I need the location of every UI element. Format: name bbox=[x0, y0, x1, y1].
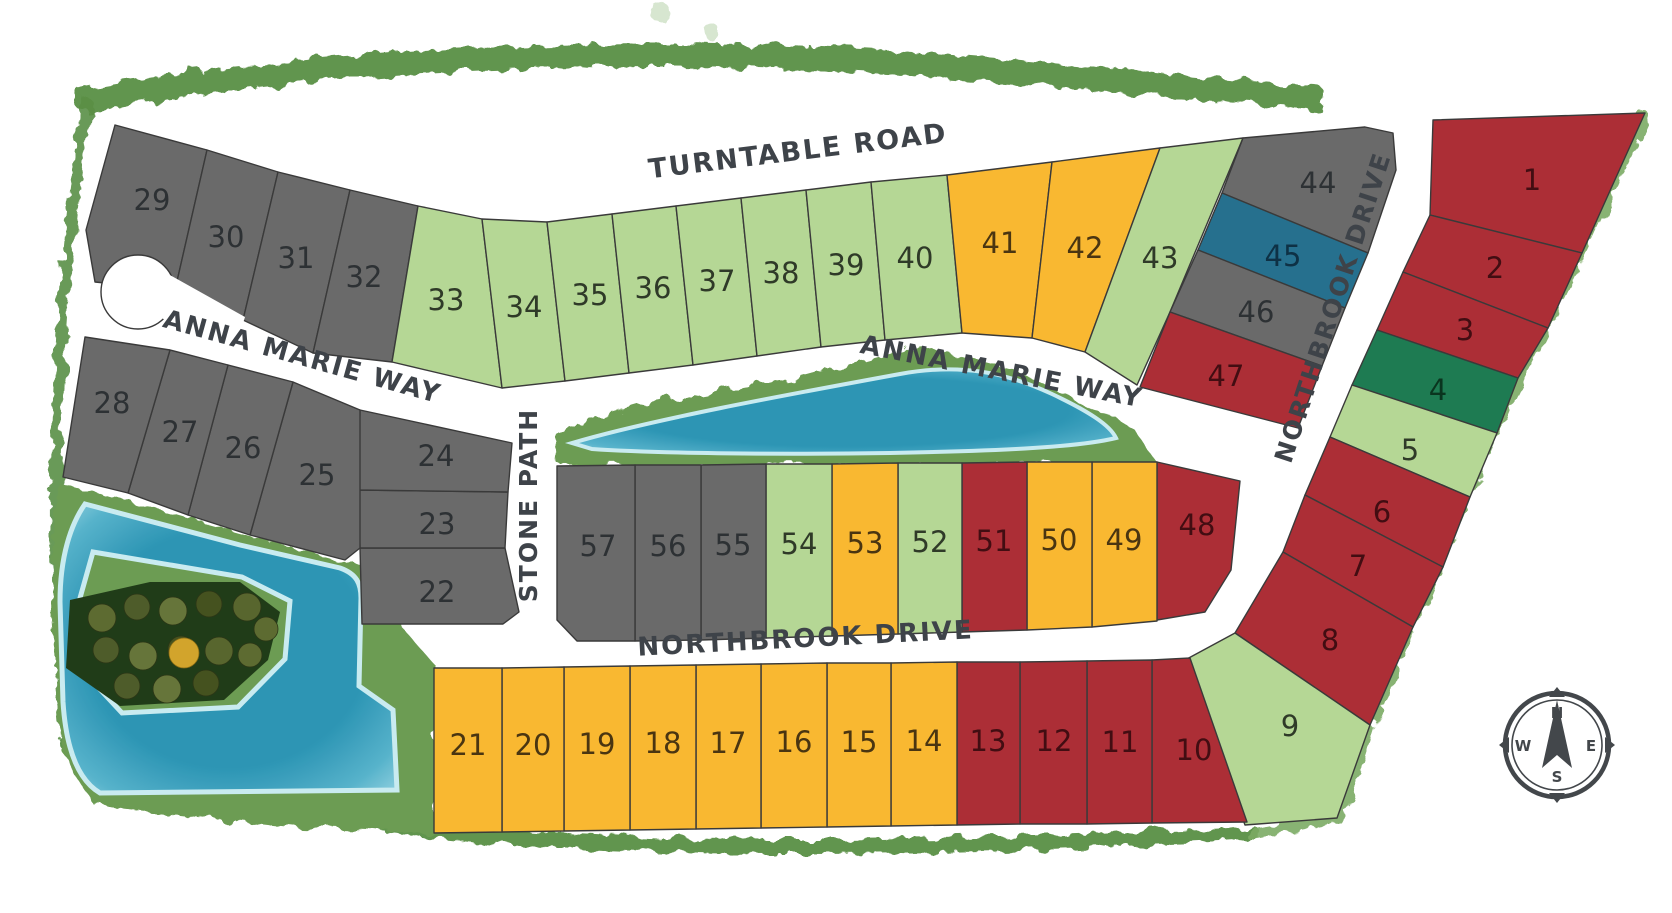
lot-39-number: 39 bbox=[828, 248, 865, 282]
tree-icon bbox=[93, 637, 119, 663]
compass-rose: NSWE bbox=[1499, 687, 1615, 803]
lot-34-number: 34 bbox=[506, 290, 543, 324]
lot-22: 22 bbox=[360, 548, 519, 624]
lot-12-number: 12 bbox=[1036, 724, 1073, 758]
lot-44-number: 44 bbox=[1300, 166, 1337, 200]
lot-2-number: 2 bbox=[1486, 251, 1504, 285]
lot-29-number: 29 bbox=[134, 183, 171, 217]
lot-15: 15 bbox=[827, 663, 891, 827]
lot-53: 53 bbox=[832, 463, 898, 636]
lot-26-number: 26 bbox=[225, 431, 262, 465]
lot-5-number: 5 bbox=[1401, 433, 1419, 467]
lot-12: 12 bbox=[1020, 661, 1087, 824]
lot-8-number: 8 bbox=[1321, 623, 1339, 657]
lot-32-number: 32 bbox=[346, 260, 383, 294]
tree-icon bbox=[114, 673, 140, 699]
lot-51-number: 51 bbox=[976, 524, 1013, 558]
lot-33-number: 33 bbox=[428, 283, 465, 317]
lot-55: 55 bbox=[701, 464, 766, 640]
lot-1-number: 1 bbox=[1523, 163, 1541, 197]
lot-55-number: 55 bbox=[715, 528, 752, 562]
lot-24: 24 bbox=[358, 410, 512, 492]
lot-28-number: 28 bbox=[94, 386, 131, 420]
tree-icon bbox=[205, 637, 233, 665]
compass-west: W bbox=[1515, 737, 1532, 755]
lot-21-number: 21 bbox=[450, 728, 487, 762]
lot-30-number: 30 bbox=[208, 220, 245, 254]
lot-20-number: 20 bbox=[515, 728, 552, 762]
lot-15-number: 15 bbox=[841, 725, 878, 759]
lot-57-number: 57 bbox=[580, 529, 617, 563]
lot-13: 13 bbox=[957, 662, 1020, 825]
lot-21: 21 bbox=[434, 668, 502, 833]
tree-icon bbox=[233, 593, 261, 621]
lot-50: 50 bbox=[1027, 462, 1092, 630]
lot-48-number: 48 bbox=[1179, 508, 1216, 542]
lot-56: 56 bbox=[635, 465, 701, 641]
tree-icon bbox=[238, 643, 262, 667]
tree-icon bbox=[129, 642, 157, 670]
lot-54-number: 54 bbox=[781, 527, 818, 561]
tree-icon bbox=[159, 597, 187, 625]
lot-50-number: 50 bbox=[1041, 523, 1078, 557]
tree-icon bbox=[124, 594, 150, 620]
lot-23: 23 bbox=[358, 490, 508, 548]
lot-19-number: 19 bbox=[579, 727, 616, 761]
lot-16: 16 bbox=[761, 663, 827, 828]
lot-16-number: 16 bbox=[776, 725, 813, 759]
lot-14-number: 14 bbox=[906, 724, 943, 758]
lot-11: 11 bbox=[1087, 660, 1152, 824]
lot-27-number: 27 bbox=[162, 415, 199, 449]
lot-4-number: 4 bbox=[1429, 373, 1447, 407]
street-label-stone-path: STONE PATH bbox=[514, 408, 543, 602]
tree-icon bbox=[88, 604, 116, 632]
lot-52-number: 52 bbox=[912, 525, 949, 559]
lot-42-number: 42 bbox=[1067, 231, 1104, 265]
green-band-top bbox=[86, 55, 1315, 100]
lot-51: 51 bbox=[962, 462, 1027, 632]
site-map-canvas: 1234567891011121314151617181920212223242… bbox=[0, 0, 1672, 913]
yellow-tree-icon bbox=[169, 638, 199, 668]
lot-53-number: 53 bbox=[847, 526, 884, 560]
lot-31-number: 31 bbox=[278, 241, 315, 275]
lot-45-number: 45 bbox=[1265, 239, 1302, 273]
compass-south: S bbox=[1552, 768, 1563, 786]
green-speck bbox=[706, 26, 722, 42]
lot-18: 18 bbox=[630, 665, 696, 830]
lot-46-number: 46 bbox=[1238, 295, 1275, 329]
lot-17-number: 17 bbox=[710, 726, 747, 760]
tree-icon bbox=[196, 591, 222, 617]
lot-11-number: 11 bbox=[1102, 725, 1139, 759]
lot-17: 17 bbox=[696, 664, 761, 829]
lot-3-number: 3 bbox=[1456, 313, 1474, 347]
lot-23-number: 23 bbox=[419, 507, 456, 541]
lot-41-number: 41 bbox=[982, 226, 1019, 260]
lot-40: 40 bbox=[871, 175, 962, 340]
lot-35-number: 35 bbox=[572, 278, 609, 312]
lot-18-number: 18 bbox=[645, 726, 682, 760]
lot-40-number: 40 bbox=[897, 241, 934, 275]
lot-38-number: 38 bbox=[763, 256, 800, 290]
lot-36-number: 36 bbox=[635, 271, 672, 305]
lot-49-number: 49 bbox=[1106, 523, 1143, 557]
lot-24-number: 24 bbox=[418, 439, 455, 473]
street-label-turntable-road: TURNTABLE ROAD bbox=[647, 118, 949, 185]
lot-43-number: 43 bbox=[1142, 241, 1179, 275]
tree-icon bbox=[193, 670, 219, 696]
site-plan: 1234567891011121314151617181920212223242… bbox=[0, 0, 1672, 913]
green-speck bbox=[650, 2, 670, 22]
lot-49: 49 bbox=[1092, 462, 1157, 627]
compass-east: E bbox=[1586, 737, 1596, 755]
lot-25-number: 25 bbox=[299, 458, 336, 492]
lot-10-number: 10 bbox=[1176, 733, 1213, 767]
lot-7-number: 7 bbox=[1349, 549, 1367, 583]
lot-22-number: 22 bbox=[419, 575, 456, 609]
tree-icon bbox=[254, 617, 278, 641]
lot-19: 19 bbox=[564, 666, 630, 831]
lot-14: 14 bbox=[891, 662, 957, 826]
lot-9-number: 9 bbox=[1281, 709, 1299, 743]
lot-20: 20 bbox=[502, 667, 564, 832]
lot-48: 48 bbox=[1157, 462, 1240, 620]
lot-52: 52 bbox=[898, 463, 962, 634]
compass-north: N bbox=[1551, 704, 1564, 722]
lot-56-number: 56 bbox=[650, 529, 687, 563]
lot-57: 57 bbox=[557, 465, 635, 641]
lot-13-number: 13 bbox=[970, 724, 1007, 758]
lot-37-number: 37 bbox=[699, 264, 736, 298]
lot-54: 54 bbox=[766, 464, 832, 638]
tree-icon bbox=[153, 675, 181, 703]
lot-47-number: 47 bbox=[1208, 359, 1245, 393]
lot-6-number: 6 bbox=[1373, 495, 1391, 529]
